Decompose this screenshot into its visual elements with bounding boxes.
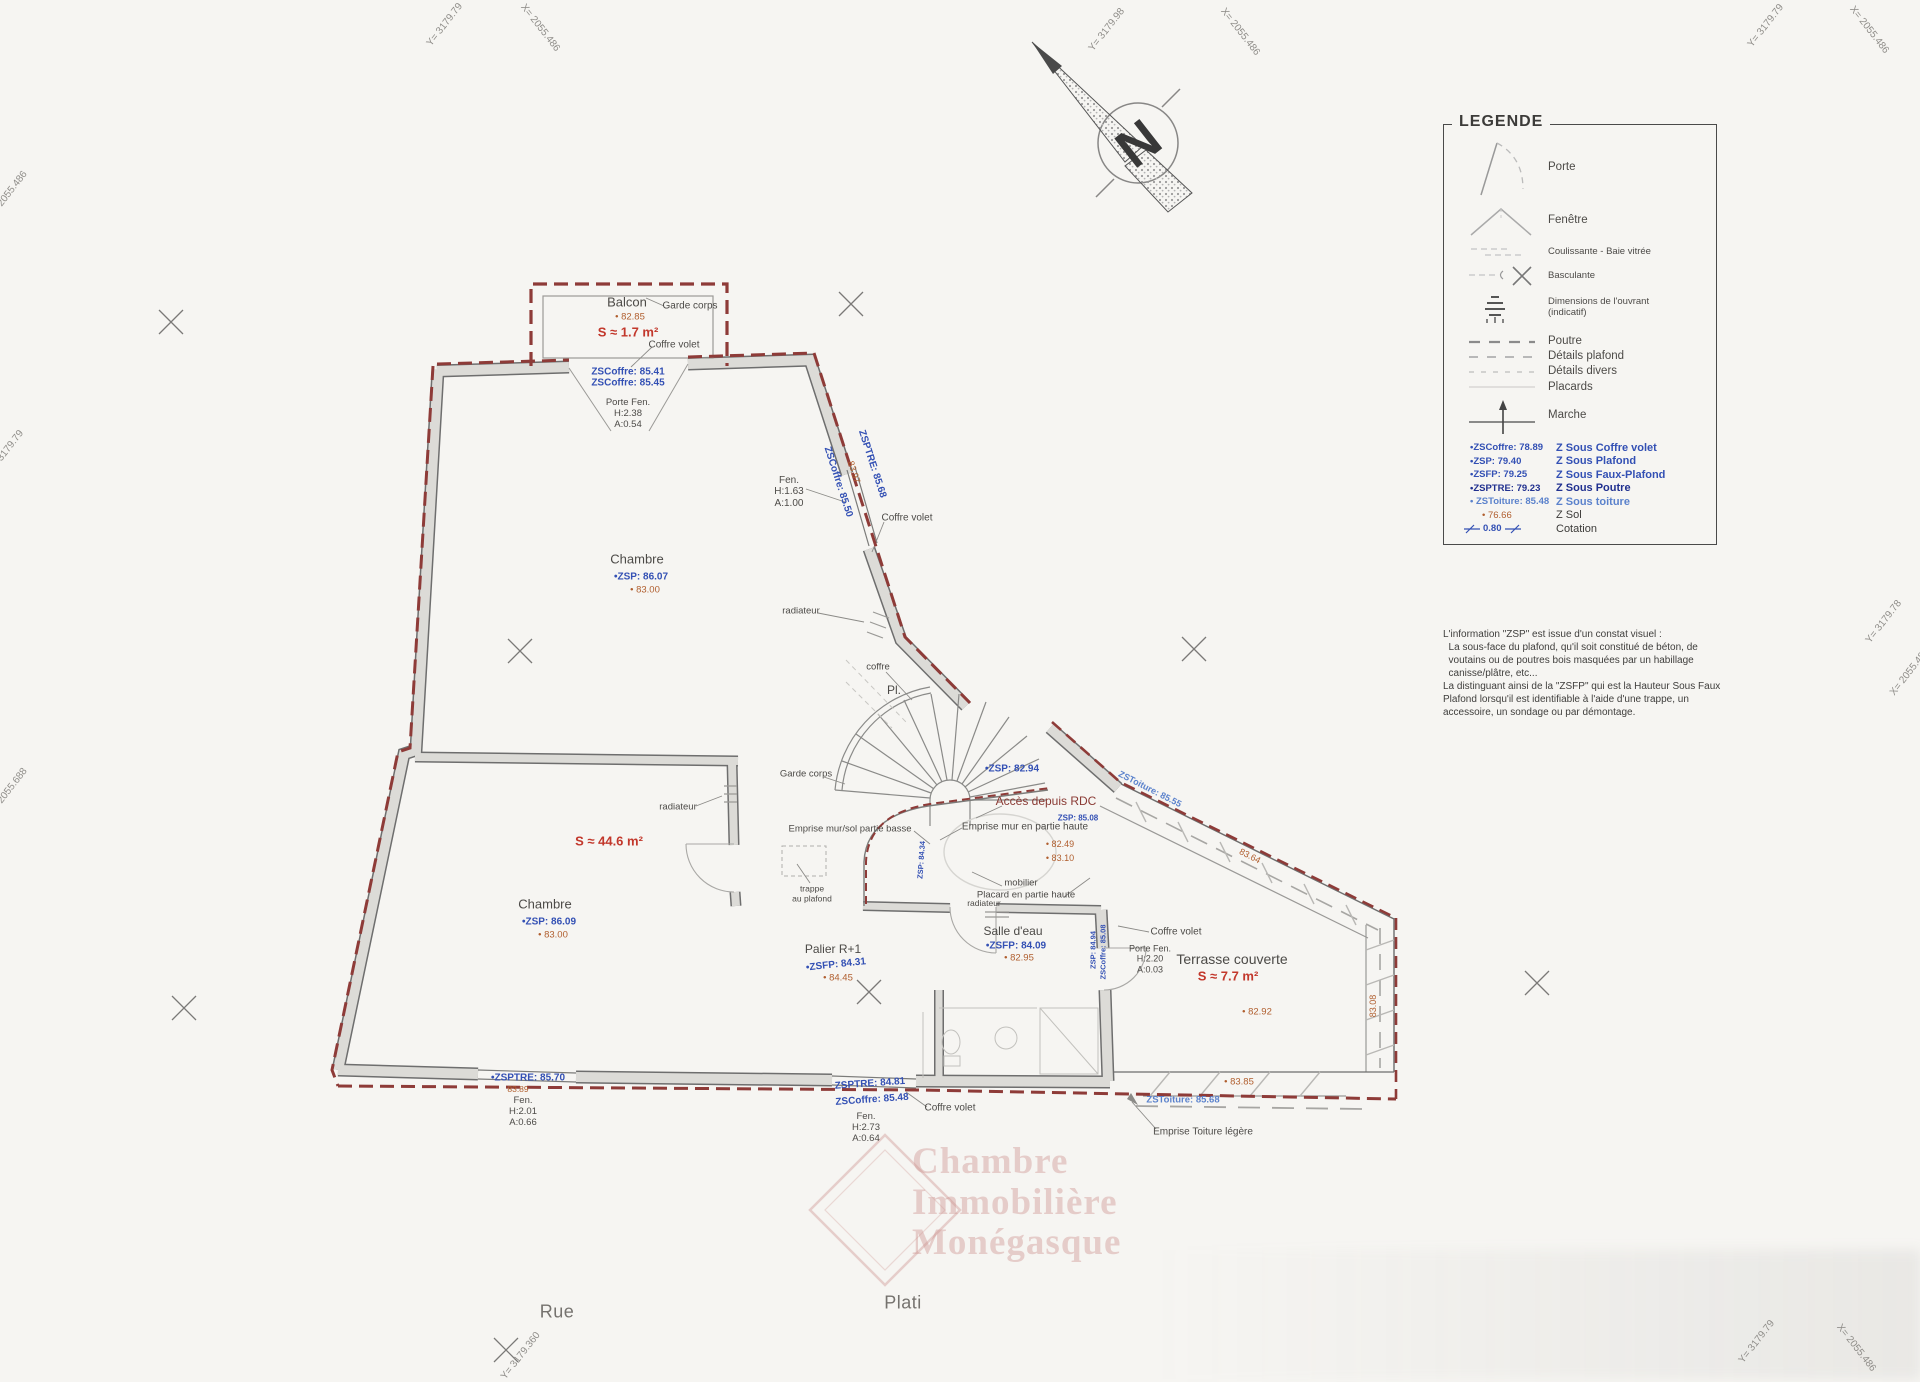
salle-eau-zsfp: •ZSFP: 84.09 xyxy=(986,940,1046,951)
scanned-floor-plan-page: { "compass": {"letter": "N"}, "legend": … xyxy=(0,0,1920,1379)
legend-key: • 76.66 xyxy=(1456,510,1556,521)
salle-eau-zsol: • 82.95 xyxy=(1004,954,1034,965)
legend-label: Dimensions de l'ouvrant (indicatif) xyxy=(1548,297,1649,319)
scan-shading xyxy=(1150,1250,1920,1379)
radiateur-upper: radiateur xyxy=(782,607,820,618)
legend-value-zsptre: •ZSPTRE: 79.23 Z Sous Poutre xyxy=(1456,482,1706,494)
legend-value-label: Z Sous Coffre volet xyxy=(1556,442,1657,454)
area-mid: S ≈ 44.6 m² xyxy=(575,835,643,850)
zsp-stair: •ZSP: 82.94 xyxy=(985,763,1039,774)
terrasse-right-cote: 83.08 xyxy=(1368,995,1378,1018)
marche-icon xyxy=(1456,396,1548,436)
zscoffre-balcon: ZSCoffre: 85.41 ZSCoffre: 85.45 xyxy=(591,367,664,390)
legend-value-label: Z Sous toiture xyxy=(1556,496,1630,508)
pl-label: Pl. xyxy=(887,684,901,698)
details-plafond-icon xyxy=(1456,352,1548,362)
wall-zscoffre-vert: ZSCoffre: 85.08 xyxy=(1100,924,1109,979)
chambre-lower-zsol: • 83.00 xyxy=(538,931,568,942)
legend-label: Coulissante - Baie vitrée xyxy=(1548,247,1651,258)
emprise-mur-haute: Emprise mur en partie haute xyxy=(962,821,1088,832)
walls-outline xyxy=(338,360,1118,1082)
legend-item-porte: Porte xyxy=(1456,137,1706,199)
chambre-upper-zsol: • 83.00 xyxy=(630,586,660,597)
legend-key: •ZSCoffre: 78.89 xyxy=(1456,442,1556,453)
legend-value-zstoiture: • ZSToiture: 85.48 Z Sous toiture xyxy=(1456,496,1706,508)
legend-item-poutre: Poutre xyxy=(1456,335,1706,348)
legend-box: LEGENDE Porte Fenêtre Coulissante - Baie… xyxy=(1443,124,1717,545)
terrasse-title: Terrasse couverte xyxy=(1176,952,1287,968)
details-divers-icon xyxy=(1456,367,1548,377)
legend-value-zsp: •ZSP: 79.40 Z Sous Plafond xyxy=(1456,455,1706,467)
fenetre-icon xyxy=(1456,201,1548,241)
porte-fen-balcon: Porte Fen. H:2.38 A:0.54 xyxy=(606,398,650,430)
legend-item-details-divers: Détails divers xyxy=(1456,365,1706,378)
stair-zsol-1: • 82.49 xyxy=(1046,839,1074,849)
emprise-toiture: Emprise Toiture légère xyxy=(1153,1126,1253,1137)
legend-key: •ZSPTRE: 79.23 xyxy=(1456,483,1556,494)
wall-zsp-vert: ZSP: 84.94 xyxy=(1090,931,1099,969)
legend-label: Fenêtre xyxy=(1548,214,1588,227)
terrasse-area: S ≈ 7.7 m² xyxy=(1198,970,1259,985)
legend-item-marche: Marche xyxy=(1456,396,1706,436)
cotation-tick-icon xyxy=(1464,524,1480,534)
zstoiture-bottom-right: ZSToiture: 85.68 xyxy=(1146,1096,1219,1107)
legend-value-label: Cotation xyxy=(1556,523,1597,535)
street-plati: Plati xyxy=(884,1293,922,1314)
terrasse-zsol: • 82.92 xyxy=(1242,1008,1272,1019)
fen-upper: Fen. H:1.63 A:1.00 xyxy=(774,475,803,509)
fen-bottom-left: Fen. H:2.01 A:0.66 xyxy=(509,1096,537,1128)
radiateur-mid: radiateur xyxy=(659,803,697,814)
coulissante-icon xyxy=(1456,243,1548,261)
coffre-mid: coffre xyxy=(866,663,890,674)
zsol-bottom-left: 83.89 xyxy=(507,1085,528,1095)
legend-value-zsfp: •ZSFP: 79.25 Z Sous Faux-Plafond xyxy=(1456,469,1706,481)
street-rue: Rue xyxy=(540,1302,575,1323)
walls-fill xyxy=(338,360,1118,1082)
mobilier: mobilier xyxy=(1004,879,1037,890)
legend-item-basculante: Basculante xyxy=(1456,263,1706,289)
stair-zsol-2: • 83.10 xyxy=(1046,853,1074,863)
placards-icon xyxy=(1456,383,1548,391)
terrasse-bottom-zsol: • 83.85 xyxy=(1224,1078,1254,1089)
coffre-volet-balcon: Coffre volet xyxy=(649,339,700,350)
legend-item-coulissante: Coulissante - Baie vitrée xyxy=(1456,243,1706,261)
legend-value-label: Z Sous Plafond xyxy=(1556,455,1636,467)
legend-label: Marche xyxy=(1548,409,1586,422)
watermark-text: Chambre Immobilière Monégasque xyxy=(912,1142,1121,1264)
legend-item-fenetre: Fenêtre xyxy=(1456,201,1706,241)
cotation-tick-icon xyxy=(1505,524,1521,534)
legend-key: •ZSFP: 79.25 xyxy=(1456,469,1556,480)
salle-eau-title: Salle d'eau xyxy=(983,925,1042,939)
legend-value-cotation: 0.80 Cotation xyxy=(1456,523,1706,535)
legend-label: Porte xyxy=(1548,161,1576,174)
legend-label: Poutre xyxy=(1548,335,1582,348)
garde-corps-mid: Garde corps xyxy=(780,770,832,781)
trappe-plafond: trappe au plafond xyxy=(792,884,832,903)
dimensions-icon xyxy=(1456,291,1548,325)
leader-lines xyxy=(631,298,1156,1129)
balcon-zsol: • 82.85 xyxy=(615,313,645,324)
garde-corps-balcon: Garde corps xyxy=(662,300,717,311)
legend-value-label: Z Sous Faux-Plafond xyxy=(1556,469,1665,481)
legend-key: 0.80 xyxy=(1456,523,1556,534)
coffre-volet-terrasse: Coffre volet xyxy=(1151,926,1202,937)
balcon-title: Balcon xyxy=(607,296,647,311)
legend-item-details-plafond: Détails plafond xyxy=(1456,350,1706,363)
legend-key: • ZSToiture: 85.48 xyxy=(1456,496,1556,507)
porte-icon xyxy=(1456,137,1548,199)
bathroom-fixtures xyxy=(923,1008,1098,1078)
legend-key: •ZSP: 79.40 xyxy=(1456,456,1556,467)
legend-label: Détails divers xyxy=(1548,365,1617,378)
north-compass: N xyxy=(1032,42,1192,212)
acces-depuis-rdc: Accès depuis RDC xyxy=(996,795,1097,809)
windows xyxy=(478,467,916,1088)
basculante-icon xyxy=(1456,263,1548,289)
palier-title: Palier R+1 xyxy=(805,943,861,957)
coffre-volet-upper: Coffre volet xyxy=(882,512,933,523)
emprise-mur-basse: Emprise mur/sol partie basse xyxy=(788,825,911,836)
legend-item-dimensions: Dimensions de l'ouvrant (indicatif) xyxy=(1456,291,1706,325)
fen-bottom-mid: Fen. H:2.73 A:0.64 xyxy=(852,1112,880,1144)
legend-label: Placards xyxy=(1548,381,1593,394)
zsptre-bottom-left: •ZSPTRE: 85.70 xyxy=(491,1072,565,1083)
legend-title: LEGENDE xyxy=(1452,113,1550,131)
chambre-lower-zsp: •ZSP: 86.09 xyxy=(522,916,576,927)
palier-zsol: • 84.45 xyxy=(823,974,853,985)
legend-label: Détails plafond xyxy=(1548,350,1624,363)
chambre-upper-zsp: •ZSP: 86.07 xyxy=(614,571,668,582)
legend-value-zscoffre: •ZSCoffre: 78.89 Z Sous Coffre volet xyxy=(1456,442,1706,454)
legend-label: Basculante xyxy=(1548,271,1595,282)
coffre-volet-bottom: Coffre volet xyxy=(925,1102,976,1113)
radiateur-low: radiateur xyxy=(967,899,1001,909)
chambre-lower-title: Chambre xyxy=(518,898,571,913)
poutre-icon xyxy=(1456,337,1548,347)
chambre-upper-title: Chambre xyxy=(610,553,663,568)
balcon-area: S ≈ 1.7 m² xyxy=(598,326,659,341)
legend-note: L'information "ZSP" est issue d'un const… xyxy=(1443,628,1758,719)
porte-fen-terrasse: Porte Fen. H:2.20 A:0.03 xyxy=(1129,944,1171,975)
trappe-outline xyxy=(782,846,826,876)
legend-value-label: Z Sous Poutre xyxy=(1556,482,1631,494)
legend-value-label: Z Sol xyxy=(1556,509,1582,521)
legend-item-placards: Placards xyxy=(1456,381,1706,394)
legend-value-zsol: • 76.66 Z Sol xyxy=(1456,509,1706,521)
